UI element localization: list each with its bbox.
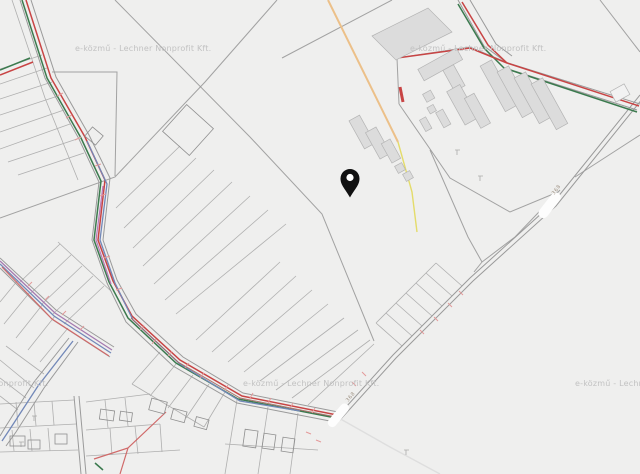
watermark-text: e-közmű - Lechner Nonprofit Kft. [410,44,546,53]
location-pin-icon[interactable] [341,169,360,198]
survey-marks [19,150,483,455]
watermark-text: e-közmű - Lechner Nonprofit Kft. [575,379,640,388]
road-shields: 368 368 [326,184,563,429]
watermark-text: e-közmű - Lechner Nonprofit Kft. [243,379,379,388]
map-svg: 368 368 e-közmű - Lechner Nonprofit Kft.… [0,0,640,474]
map-canvas[interactable]: 368 368 e-közmű - Lechner Nonprofit Kft.… [0,0,640,474]
road-number-label: 368 [551,184,563,197]
road-number-shield [536,190,562,220]
utility-lines [0,0,639,474]
watermark-text: e-közmű - Lechner Nonprofit Kft. [75,44,211,53]
watermark-text: e-közmű - Lechner Nonprofit Kft. [0,379,48,388]
